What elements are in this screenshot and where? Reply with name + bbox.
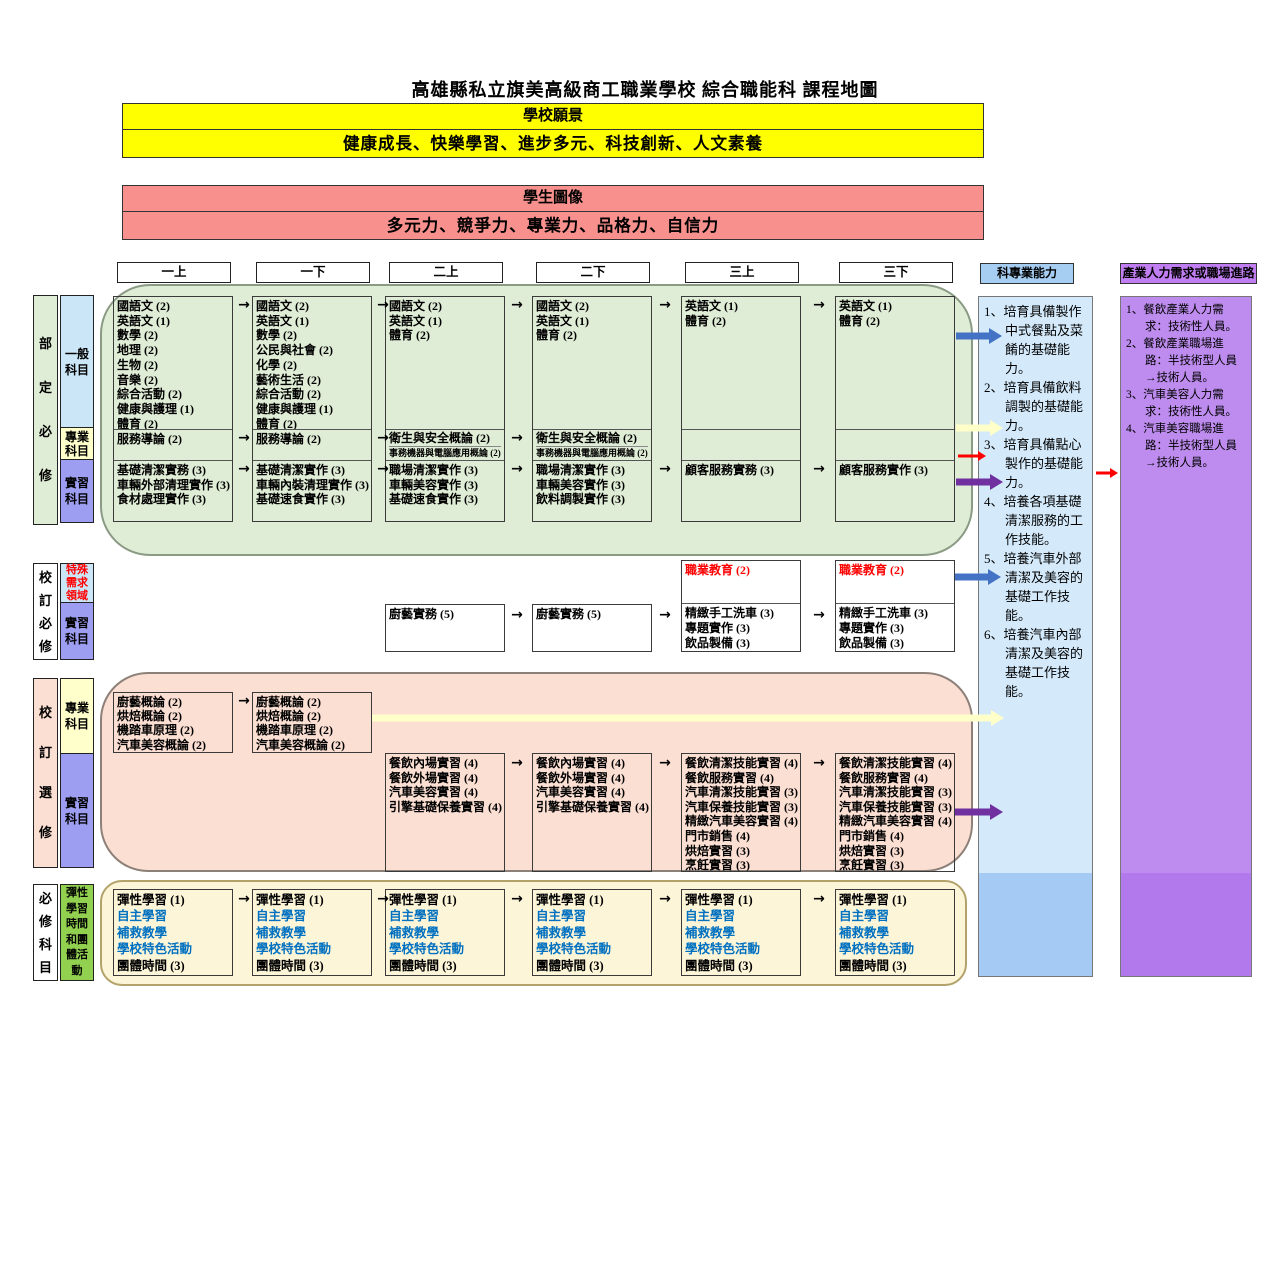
professional-courses-empty bbox=[836, 430, 954, 461]
general-courses: 國語文 (2)英語文 (1)體育 (2) bbox=[386, 297, 504, 430]
remedial-teaching-line: 補救教學 bbox=[536, 925, 648, 941]
group-time-line: 團體時間 (3) bbox=[839, 958, 951, 974]
flow-arrow: → bbox=[505, 891, 529, 907]
industry-panel: 1、餐飲產業人力需求：技術性人員。2、餐飲產業職場進路：半技術型人員→技術人員。… bbox=[1120, 296, 1252, 977]
flow-arrow: → bbox=[807, 461, 831, 477]
flow-arrow: → bbox=[371, 891, 395, 907]
flow-arrow: → bbox=[232, 693, 256, 709]
self-learning-line: 自主學習 bbox=[536, 908, 648, 924]
ministry-course-box-2a: 國語文 (2)英語文 (1)體育 (2) 衛生與安全概論 (2) 事務機器與電腦… bbox=[385, 296, 505, 522]
flow-arrow: → bbox=[505, 461, 529, 477]
school-activity-line: 學校特色活動 bbox=[839, 941, 951, 957]
flow-arrow: → bbox=[505, 607, 529, 623]
flow-arrow: → bbox=[505, 297, 529, 313]
general-courses: 國語文 (2)英語文 (1)數學 (2)地理 (2)生物 (2)音樂 (2)綜合… bbox=[114, 297, 232, 430]
vision-header: 學校願景 bbox=[123, 104, 983, 130]
curriculum-map-page: 高雄縣私立旗美高級商工職業學校 綜合職能科 課程地圖 學校願景 健康成長、快樂學… bbox=[0, 0, 1280, 1280]
flex-box-2b: 彈性學習 (1) 自主學習 補救教學 學校特色活動 團體時間 (3) bbox=[532, 889, 652, 976]
school-required-box-3a: 職業教育 (2) 精緻手工洗車 (3)專題實作 (3)飲品製備 (3) bbox=[681, 560, 801, 652]
abilities-panel: 1、培育具備製作中式餐點及菜餚的基礎能力。2、培育具備飲料調製的基礎能力。3、培… bbox=[978, 296, 1093, 977]
self-learning-line: 自主學習 bbox=[256, 908, 368, 924]
sublabel-general-subjects: 一般科目 bbox=[60, 295, 94, 428]
flow-arrow: → bbox=[807, 297, 831, 313]
vision-text: 健康成長、快樂學習、進步多元、科技創新、人文素養 bbox=[123, 130, 983, 157]
flow-arrow: → bbox=[653, 461, 677, 477]
elective-intro-box-1a: 廚藝概論 (2)烘焙概論 (2)機踏車原理 (2)汽車美容概論 (2) bbox=[113, 692, 233, 753]
remedial-teaching-line: 補救教學 bbox=[389, 925, 501, 941]
self-learning-line: 自主學習 bbox=[389, 908, 501, 924]
group-time-line: 團體時間 (3) bbox=[536, 958, 648, 974]
professional-courses: 服務導論 (2) bbox=[114, 430, 232, 461]
pale-yellow-flow-arrow bbox=[372, 709, 1004, 727]
ministry-course-box-3a: 英語文 (1)體育 (2) 顧客服務實務 (3) bbox=[681, 296, 801, 522]
practicum-courses: 餐飲內場實習 (4)餐飲外場實習 (4)汽車美容實習 (4)引擎基礎保養實習 (… bbox=[386, 754, 504, 816]
professional-courses: 衛生與安全概論 (2) 事務機器與電腦應用概論 (2) bbox=[386, 430, 504, 461]
semester-header-3a: 三上 bbox=[685, 262, 799, 283]
practicum-courses: 餐飲清潔技能實習 (4)餐飲服務實習 (4)汽車清潔技能實習 (3)汽車保養技能… bbox=[682, 754, 800, 871]
sublabel-flexible-learning: 彈性學習時間和團體活動 bbox=[60, 884, 94, 981]
practicum-courses: 餐飲清潔技能實習 (4)餐飲服務實習 (4)汽車清潔技能實習 (3)汽車保養技能… bbox=[836, 754, 954, 871]
ministry-course-box-3b: 英語文 (1)體育 (2) 顧客服務實作 (3) bbox=[835, 296, 955, 522]
vocational-education-course: 職業教育 (2) bbox=[682, 561, 800, 604]
vocational-education-course: 職業教育 (2) bbox=[836, 561, 954, 604]
sublabel-special-needs: 特殊需求領域 bbox=[60, 563, 94, 603]
semester-header-2b: 二下 bbox=[536, 262, 650, 283]
group-time-line: 團體時間 (3) bbox=[389, 958, 501, 974]
group-time-line: 團體時間 (3) bbox=[117, 958, 229, 974]
school-required-box-3b: 職業教育 (2) 精緻手工洗車 (3)專題實作 (3)飲品製備 (3) bbox=[835, 560, 955, 652]
industry-panel-footer bbox=[1121, 873, 1251, 976]
flex-box-1a: 彈性學習 (1) 自主學習 補救教學 學校特色活動 團體時間 (3) bbox=[113, 889, 233, 976]
page-title: 高雄縣私立旗美高級商工職業學校 綜合職能科 課程地圖 bbox=[10, 76, 1280, 102]
professional-courses: 服務導論 (2) bbox=[253, 430, 371, 461]
flex-learning-line: 彈性學習 (1) bbox=[117, 892, 229, 908]
flow-arrow: → bbox=[807, 607, 831, 623]
flow-arrow: → bbox=[232, 430, 256, 446]
culinary-practice-box-2b: 廚藝實務 (5) bbox=[532, 604, 652, 652]
remedial-teaching-line: 補救教學 bbox=[685, 925, 797, 941]
group-time-line: 團體時間 (3) bbox=[685, 958, 797, 974]
flow-arrow: → bbox=[232, 461, 256, 477]
flex-box-2a: 彈性學習 (1) 自主學習 補救教學 學校特色活動 團體時間 (3) bbox=[385, 889, 505, 976]
general-courses: 國語文 (2)英語文 (1)體育 (2) bbox=[533, 297, 651, 430]
flex-learning-line: 彈性學習 (1) bbox=[685, 892, 797, 908]
elective-practicum-box-3b: 餐飲清潔技能實習 (4)餐飲服務實習 (4)汽車清潔技能實習 (3)汽車保養技能… bbox=[835, 753, 955, 872]
practicum-courses: 職場清潔實作 (3)車輛美容實作 (3)飲料調製實作 (3) bbox=[533, 461, 651, 521]
remedial-teaching-line: 補救教學 bbox=[117, 925, 229, 941]
pale-yellow-flow-arrow bbox=[956, 419, 1003, 437]
sublabel-professional-subjects: 專業科目 bbox=[60, 427, 94, 460]
flow-arrow: → bbox=[505, 755, 529, 771]
intro-courses: 廚藝概論 (2)烘焙概論 (2)機踏車原理 (2)汽車美容概論 (2) bbox=[253, 693, 371, 752]
sublabel-practicum-subjects: 實習科目 bbox=[60, 753, 94, 868]
flow-arrow: → bbox=[807, 891, 831, 907]
practicum-courses: 精緻手工洗車 (3)專題實作 (3)飲品製備 (3) bbox=[682, 604, 800, 651]
sublabel-professional-subjects: 專業科目 bbox=[60, 678, 94, 754]
school-activity-line: 學校特色活動 bbox=[685, 941, 797, 957]
ministry-course-box-2b: 國語文 (2)英語文 (1)體育 (2) 衛生與安全概論 (2) 事務機器與電腦… bbox=[532, 296, 652, 522]
general-courses: 英語文 (1)體育 (2) bbox=[836, 297, 954, 430]
ministry-required-label: 部定必修 bbox=[33, 295, 58, 525]
hygiene-course: 衛生與安全概論 (2) bbox=[389, 431, 501, 446]
flex-learning-line: 彈性學習 (1) bbox=[256, 892, 368, 908]
intro-courses: 廚藝概論 (2)烘焙概論 (2)機踏車原理 (2)汽車美容概論 (2) bbox=[114, 693, 232, 752]
flow-arrow: → bbox=[371, 430, 395, 446]
practicum-courses: 精緻手工洗車 (3)專題實作 (3)飲品製備 (3) bbox=[836, 604, 954, 651]
school-activity-line: 學校特色活動 bbox=[389, 941, 501, 957]
blue-flow-arrow bbox=[955, 568, 1001, 586]
self-learning-line: 自主學習 bbox=[117, 908, 229, 924]
school-activity-line: 學校特色活動 bbox=[117, 941, 229, 957]
elective-practicum-box-3a: 餐飲清潔技能實習 (4)餐飲服務實習 (4)汽車清潔技能實習 (3)汽車保養技能… bbox=[681, 753, 801, 872]
industry-list: 1、餐飲產業人力需求：技術性人員。2、餐飲產業職場進路：半技術型人員→技術人員。… bbox=[1121, 297, 1251, 477]
flex-box-3b: 彈性學習 (1) 自主學習 補救教學 學校特色活動 團體時間 (3) bbox=[835, 889, 955, 976]
practicum-courses: 基礎清潔實務 (3)車輛外部清理實作 (3)食材處理實作 (3) bbox=[114, 461, 232, 521]
semester-header-3b: 三下 bbox=[839, 262, 953, 283]
office-machines-course: 事務機器與電腦應用概論 (2) bbox=[536, 446, 648, 459]
school-required-label: 校訂必修 bbox=[33, 563, 58, 660]
flow-arrow: → bbox=[371, 297, 395, 313]
elective-practicum-box-2a: 餐飲內場實習 (4)餐飲外場實習 (4)汽車美容實習 (4)引擎基礎保養實習 (… bbox=[385, 753, 505, 872]
semester-header-2a: 二上 bbox=[389, 262, 503, 283]
flow-arrow: → bbox=[232, 297, 256, 313]
semester-header-1b: 一下 bbox=[256, 262, 370, 283]
blue-flow-arrow bbox=[956, 327, 1002, 345]
flex-learning-line: 彈性學習 (1) bbox=[389, 892, 501, 908]
student-header: 學生圖像 bbox=[123, 186, 983, 212]
ministry-course-box-1a: 國語文 (2)英語文 (1)數學 (2)地理 (2)生物 (2)音樂 (2)綜合… bbox=[113, 296, 233, 522]
general-courses: 國語文 (2)英語文 (1)數學 (2)公民與社會 (2)化學 (2)藝術生活 … bbox=[253, 297, 371, 430]
student-image-banner: 學生圖像 多元力、競爭力、專業力、品格力、自信力 bbox=[122, 185, 984, 240]
purple-flow-arrow bbox=[956, 473, 1003, 491]
group-time-line: 團體時間 (3) bbox=[256, 958, 368, 974]
remedial-teaching-line: 補救教學 bbox=[256, 925, 368, 941]
general-courses: 英語文 (1)體育 (2) bbox=[682, 297, 800, 430]
semester-header-1a: 一上 bbox=[117, 262, 231, 283]
abilities-list: 1、培育具備製作中式餐點及菜餚的基礎能力。2、培育具備飲料調製的基礎能力。3、培… bbox=[979, 297, 1092, 706]
professional-courses: 衛生與安全概論 (2) 事務機器與電腦應用概論 (2) bbox=[533, 430, 651, 461]
school-elective-label: 校訂選修 bbox=[33, 678, 58, 868]
self-learning-line: 自主學習 bbox=[685, 908, 797, 924]
student-text: 多元力、競爭力、專業力、品格力、自信力 bbox=[123, 212, 983, 239]
remedial-teaching-line: 補救教學 bbox=[839, 925, 951, 941]
sublabel-practicum-subjects: 實習科目 bbox=[60, 459, 94, 523]
flow-arrow: → bbox=[505, 430, 529, 446]
flow-arrow: → bbox=[653, 891, 677, 907]
red-flow-arrow bbox=[958, 447, 986, 465]
required-subjects-label: 必修科目 bbox=[33, 884, 58, 981]
hygiene-course: 衛生與安全概論 (2) bbox=[536, 431, 648, 446]
flow-arrow: → bbox=[232, 891, 256, 907]
practicum-courses: 基礎清潔實作 (3)車輛內裝清理實作 (3)基礎速食實作 (3) bbox=[253, 461, 371, 521]
school-vision-banner: 學校願景 健康成長、快樂學習、進步多元、科技創新、人文素養 bbox=[122, 103, 984, 158]
flex-box-3a: 彈性學習 (1) 自主學習 補救教學 學校特色活動 團體時間 (3) bbox=[681, 889, 801, 976]
flex-box-1b: 彈性學習 (1) 自主學習 補救教學 學校特色活動 團體時間 (3) bbox=[252, 889, 372, 976]
red-flow-arrow bbox=[1096, 464, 1118, 482]
flow-arrow: → bbox=[653, 755, 677, 771]
culinary-practice-box-2a: 廚藝實務 (5) bbox=[385, 604, 505, 652]
flex-learning-line: 彈性學習 (1) bbox=[536, 892, 648, 908]
professional-courses-empty bbox=[682, 430, 800, 461]
practicum-courses: 職場清潔實作 (3)車輛美容實作 (3)基礎速食實作 (3) bbox=[386, 461, 504, 521]
office-machines-course: 事務機器與電腦應用概論 (2) bbox=[389, 446, 501, 459]
purple-flow-arrow bbox=[955, 803, 1003, 821]
school-activity-line: 學校特色活動 bbox=[256, 941, 368, 957]
flow-arrow: → bbox=[653, 297, 677, 313]
self-learning-line: 自主學習 bbox=[839, 908, 951, 924]
practicum-courses: 餐飲內場實習 (4)餐飲外場實習 (4)汽車美容實習 (4)引擎基礎保養實習 (… bbox=[533, 754, 651, 816]
abilities-header: 科專業能力 bbox=[980, 263, 1074, 284]
flow-arrow: → bbox=[371, 461, 395, 477]
elective-practicum-box-2b: 餐飲內場實習 (4)餐飲外場實習 (4)汽車美容實習 (4)引擎基礎保養實習 (… bbox=[532, 753, 652, 872]
abilities-panel-footer bbox=[979, 873, 1092, 976]
practicum-courses: 顧客服務實務 (3) bbox=[682, 461, 800, 521]
practicum-courses: 顧客服務實作 (3) bbox=[836, 461, 954, 521]
flow-arrow: → bbox=[807, 755, 831, 771]
elective-intro-box-1b: 廚藝概論 (2)烘焙概論 (2)機踏車原理 (2)汽車美容概論 (2) bbox=[252, 692, 372, 753]
ministry-course-box-1b: 國語文 (2)英語文 (1)數學 (2)公民與社會 (2)化學 (2)藝術生活 … bbox=[252, 296, 372, 522]
sublabel-practicum-subjects: 實習科目 bbox=[60, 602, 94, 660]
school-activity-line: 學校特色活動 bbox=[536, 941, 648, 957]
industry-header: 產業人力需求或職場進路 bbox=[1120, 263, 1257, 284]
flow-arrow: → bbox=[653, 607, 677, 623]
flex-learning-line: 彈性學習 (1) bbox=[839, 892, 951, 908]
